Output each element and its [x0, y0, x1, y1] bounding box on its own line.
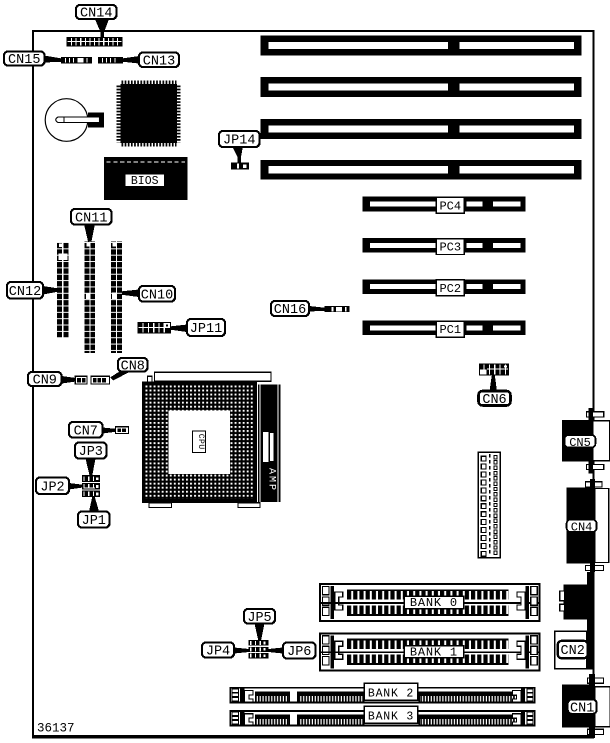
svg-text:JP3: JP3 [79, 445, 103, 460]
svg-text:AMP: AMP [266, 468, 277, 492]
svg-text:CN5: CN5 [569, 436, 591, 450]
svg-text:CN12: CN12 [9, 285, 41, 300]
svg-text:BANK 1: BANK 1 [410, 646, 458, 660]
svg-text:CN6: CN6 [482, 393, 506, 408]
svg-text:BIOS: BIOS [131, 175, 159, 188]
svg-text:PC3: PC3 [439, 241, 461, 255]
svg-text:CN15: CN15 [8, 53, 40, 68]
svg-text:BANK 0: BANK 0 [410, 596, 458, 610]
svg-text:JP4: JP4 [206, 645, 230, 660]
svg-text:PC1: PC1 [439, 323, 461, 337]
svg-text:CN10: CN10 [141, 288, 173, 303]
svg-text:CN9: CN9 [33, 374, 57, 389]
svg-text:CPU: CPU [196, 434, 205, 450]
svg-text:JP11: JP11 [190, 322, 222, 337]
svg-text:CN16: CN16 [274, 303, 306, 318]
svg-text:CN1: CN1 [570, 701, 594, 716]
svg-text:BANK 3: BANK 3 [368, 710, 414, 723]
svg-text:36137: 36137 [37, 722, 75, 736]
svg-text:JP2: JP2 [40, 480, 64, 495]
svg-text:JP6: JP6 [287, 645, 311, 660]
svg-text:CN2: CN2 [561, 644, 585, 659]
svg-text:CN13: CN13 [143, 54, 175, 69]
svg-text:PC4: PC4 [439, 199, 461, 213]
svg-text:PC2: PC2 [439, 282, 461, 296]
svg-text:JP1: JP1 [82, 514, 106, 529]
svg-text:BANK 2: BANK 2 [368, 687, 414, 700]
svg-text:CN4: CN4 [571, 520, 593, 534]
svg-text:CN7: CN7 [74, 424, 98, 439]
